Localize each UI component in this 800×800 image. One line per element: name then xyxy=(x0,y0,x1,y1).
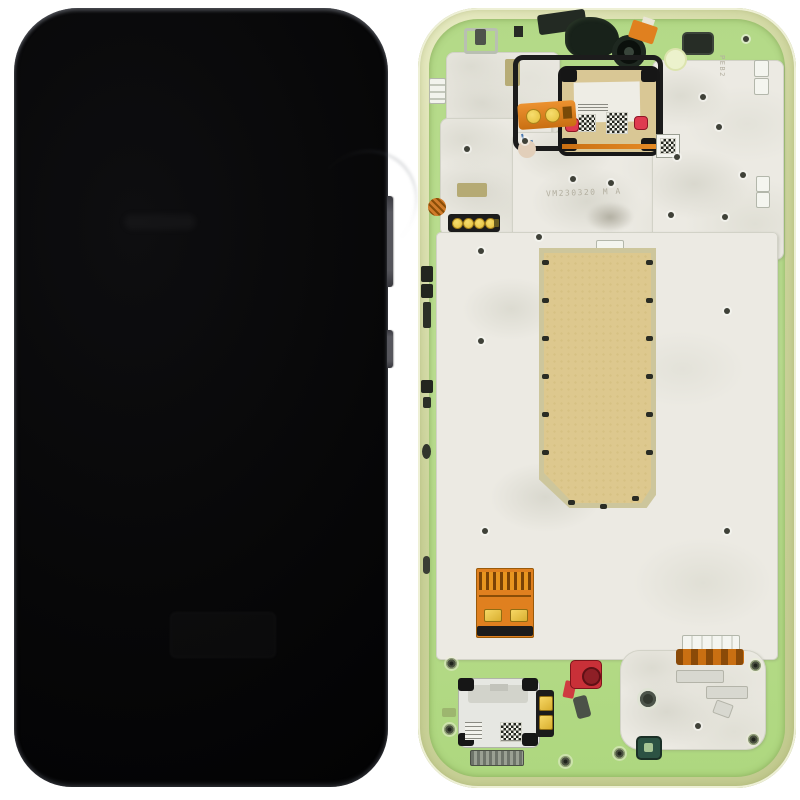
side-key-flex xyxy=(423,302,431,328)
screw xyxy=(522,138,528,144)
top-left-sensor xyxy=(475,29,486,45)
screw xyxy=(724,308,730,314)
screw xyxy=(740,172,746,178)
side-connector-tab xyxy=(754,60,769,77)
pad-rivet xyxy=(542,412,549,417)
gold-pad xyxy=(484,609,502,622)
screw xyxy=(748,734,759,745)
screw xyxy=(608,180,614,186)
pad-rivet xyxy=(600,504,607,509)
red-gasket xyxy=(634,116,648,130)
mic-gasket xyxy=(636,736,662,760)
speaker-corner-pad xyxy=(561,69,577,82)
side-key-cutout xyxy=(421,284,433,298)
screen-reflection-rect xyxy=(170,612,276,658)
gold-contact xyxy=(539,696,553,711)
gold-contact xyxy=(474,218,485,229)
khaki-pad xyxy=(457,183,487,197)
rear-mic-opening xyxy=(682,32,714,55)
volume-button xyxy=(387,196,393,287)
speaker-qr-code xyxy=(606,112,628,134)
gasket-hole xyxy=(644,743,653,752)
screw xyxy=(695,723,701,729)
thermal-pad xyxy=(544,253,651,503)
power-button xyxy=(387,330,393,368)
gold-contact xyxy=(539,715,553,730)
gold-contact xyxy=(452,218,463,229)
screw xyxy=(446,658,457,669)
antenna-flex-cable xyxy=(517,100,577,130)
left-connector-tab xyxy=(429,78,446,104)
pad-rivet xyxy=(542,298,549,303)
pad-rivet xyxy=(646,450,653,455)
motor-eccentric xyxy=(582,667,601,686)
speaker-corner-pad xyxy=(458,678,474,691)
adhesive-dot xyxy=(664,48,687,71)
pad-rivet xyxy=(542,450,549,455)
screw xyxy=(536,234,542,240)
pad-rivet xyxy=(646,298,653,303)
speaker-notch xyxy=(490,684,508,691)
side-connector-tab xyxy=(756,192,770,208)
microphone-hole xyxy=(640,691,656,707)
screen-reflection-smudge xyxy=(124,214,196,230)
etched-smudge xyxy=(586,202,634,232)
gold-contact xyxy=(526,108,542,124)
flex-seam xyxy=(479,595,531,597)
sub-flex-cable xyxy=(676,649,744,665)
screw xyxy=(482,528,488,534)
side-key-contact-strip xyxy=(448,214,500,232)
connector-base xyxy=(477,626,533,636)
speaker-qr-code xyxy=(578,114,596,132)
speaker-code-sticker xyxy=(465,722,482,740)
pad-rivet xyxy=(646,260,653,265)
screw xyxy=(478,338,484,344)
pad-rivet xyxy=(646,374,653,379)
phone-assembly-photo: PEB2 VM2 xyxy=(0,0,800,800)
side-key-cutout xyxy=(423,397,431,408)
rail-hole xyxy=(423,556,430,574)
screw xyxy=(724,528,730,534)
pad-rivet xyxy=(542,260,549,265)
screen-reflection-arc xyxy=(289,129,438,279)
rail-hole xyxy=(422,444,431,459)
speaker-corner-pad xyxy=(641,69,657,82)
stamped-rib xyxy=(706,686,748,699)
stamped-rib xyxy=(676,670,724,683)
front-camera-module xyxy=(565,17,619,59)
etched-corner-text: PEB2 xyxy=(718,55,726,78)
screw xyxy=(722,214,728,220)
speaker-contact-strip xyxy=(536,690,554,737)
side-connector-tab xyxy=(754,78,769,95)
speaker-qr-code xyxy=(500,722,522,742)
speaker-flex-strip xyxy=(562,144,656,149)
flex-slot xyxy=(562,106,572,119)
pad-rivet xyxy=(542,374,549,379)
display-front-glass xyxy=(14,8,388,787)
speaker-grille xyxy=(470,750,524,766)
qr-code xyxy=(660,138,676,154)
top-chip xyxy=(514,26,523,37)
screw xyxy=(750,660,761,671)
side-key-cutout xyxy=(421,266,433,282)
screw xyxy=(668,212,674,218)
connector-pins xyxy=(479,572,531,590)
coil-flex xyxy=(428,198,446,216)
screw xyxy=(444,724,455,735)
speaker-code-lines xyxy=(578,104,608,112)
pad-rivet xyxy=(568,500,575,505)
screw xyxy=(478,248,484,254)
screw xyxy=(614,748,625,759)
gold-contact xyxy=(545,107,561,123)
contact-end xyxy=(494,219,499,227)
plastic-tab xyxy=(442,708,456,717)
gold-pad xyxy=(510,609,528,622)
screw xyxy=(743,36,749,42)
pad-rivet xyxy=(646,412,653,417)
side-connector-tab xyxy=(756,176,770,192)
screw xyxy=(570,176,576,182)
side-key-cutout xyxy=(421,380,433,393)
screw xyxy=(674,154,680,160)
screw xyxy=(716,124,722,130)
vibration-motor xyxy=(570,660,602,689)
speaker-corner-pad xyxy=(522,678,538,691)
display-flex-connector xyxy=(476,568,534,638)
gold-contact xyxy=(463,218,474,229)
pad-rivet xyxy=(632,496,639,501)
screw xyxy=(560,756,571,767)
pad-rivet xyxy=(542,336,549,341)
screw xyxy=(700,94,706,100)
pad-rivet xyxy=(646,336,653,341)
thermal-pad-frame xyxy=(539,248,656,508)
frame-rear: PEB2 VM2 xyxy=(418,8,796,788)
screw xyxy=(464,146,470,152)
